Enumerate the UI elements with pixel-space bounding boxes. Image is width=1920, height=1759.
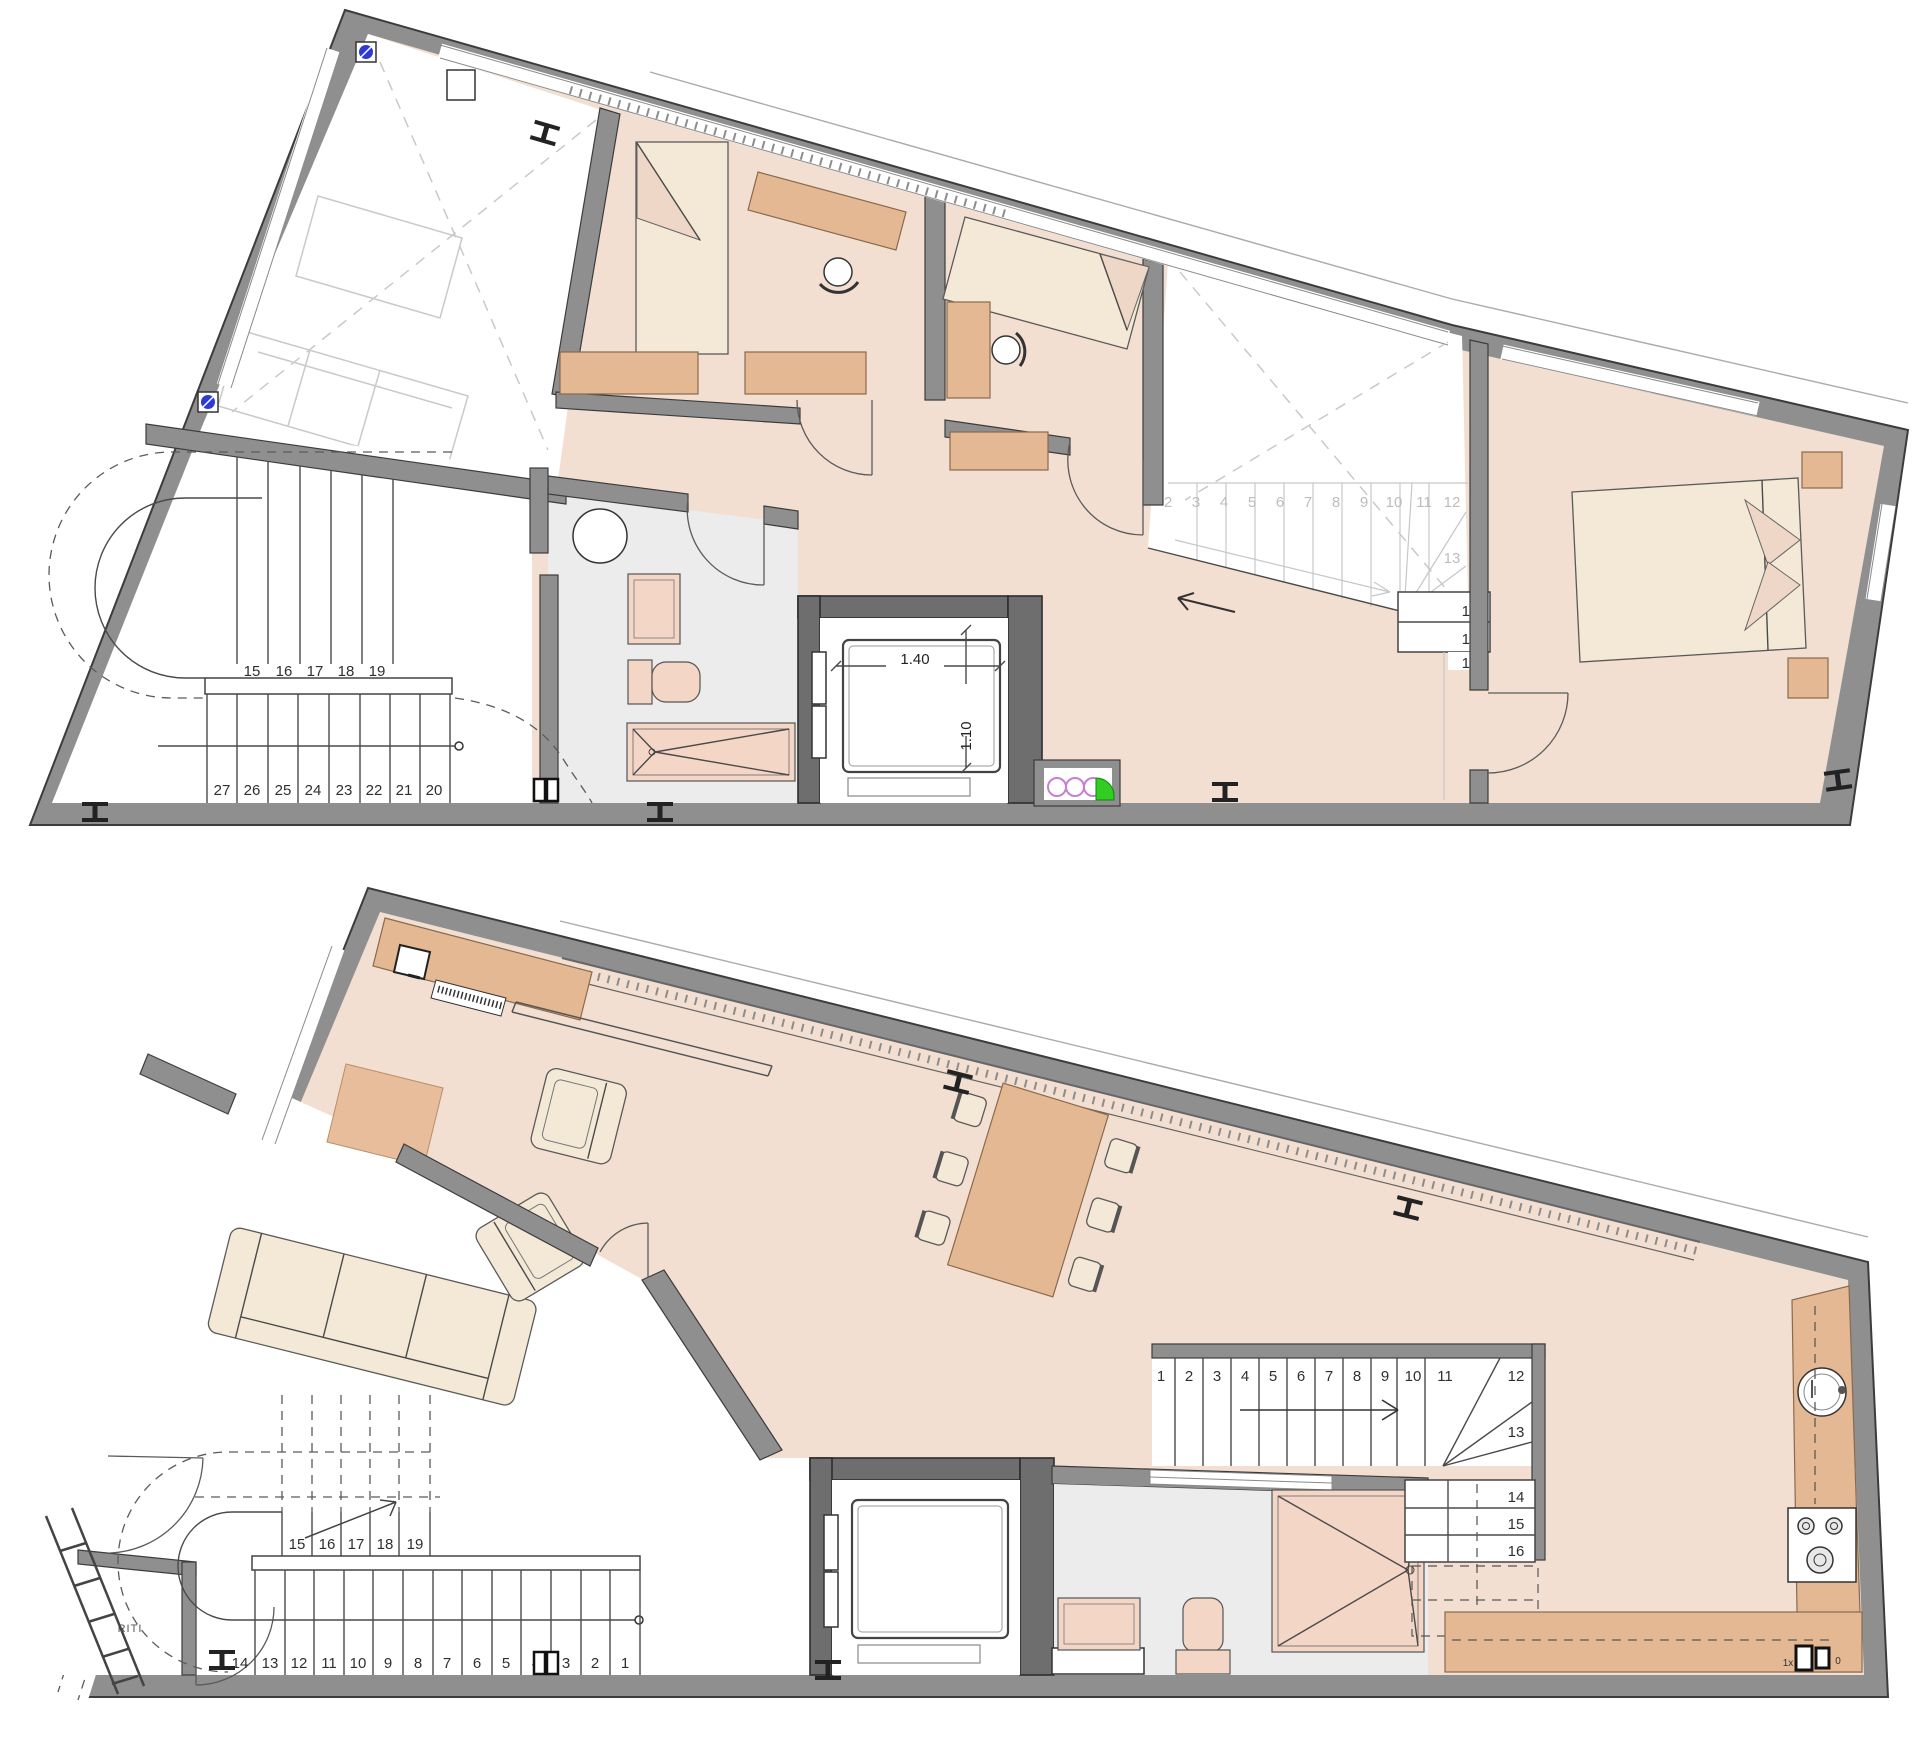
round-basin [573, 509, 627, 563]
bathroom-upper [548, 492, 798, 803]
shaft-wall-top [798, 596, 1008, 618]
step-num: 2 [1185, 1368, 1193, 1385]
wall-bed3-left [1470, 340, 1488, 690]
step-num: 15 [244, 663, 261, 680]
step-num: 2 [1164, 494, 1172, 511]
step-num: 10 [350, 1655, 367, 1672]
step-num: 5 [502, 1655, 510, 1672]
step-num-12: 12 [1508, 1368, 1525, 1385]
step-num: 10 [1405, 1368, 1422, 1385]
wall-niche [447, 70, 475, 100]
step-num: 15 [289, 1536, 306, 1553]
socket-label: 1x [1783, 1658, 1794, 1669]
bathroom-lower [1052, 1466, 1428, 1675]
step-num: 11 [1437, 1368, 1453, 1385]
washbasin [1058, 1598, 1140, 1650]
toilet-bowl [652, 662, 700, 702]
step-num-13: 13 [1508, 1424, 1525, 1441]
step-num: 18 [338, 663, 355, 680]
step-num: 11 [321, 1655, 337, 1672]
laundry-niche [1034, 760, 1120, 806]
stair-landing-lower: 14 15 16 [1405, 1480, 1535, 1562]
step-num: 12 [291, 1655, 308, 1672]
step-num: 16 [319, 1536, 336, 1553]
step-num: 6 [473, 1655, 481, 1672]
dim-140: 1.40 [900, 651, 929, 668]
nightstand-1 [1802, 452, 1842, 488]
sliding-door-1 [812, 652, 826, 704]
step-num: 24 [305, 782, 322, 799]
step-num: 23 [336, 782, 353, 799]
sideboard-1 [560, 352, 698, 394]
floor-plan-sheet: 1.40 1.10 [0, 0, 1920, 1759]
wall-bed1-bed2 [925, 183, 945, 400]
dim-110: 1.10 [958, 721, 975, 750]
step-num: 8 [1332, 494, 1340, 511]
step-num: 4 [1241, 1368, 1249, 1385]
upper-floor-plan: 1.40 1.10 [30, 10, 1908, 825]
vent-symbol-lower [534, 1652, 558, 1674]
step-num: 13 [262, 1655, 279, 1672]
wall-bed2-void [1143, 259, 1163, 505]
step-num: 7 [1304, 494, 1312, 511]
step-num: 17 [348, 1536, 365, 1553]
step-num: 19 [369, 663, 386, 680]
step-num: 25 [275, 782, 292, 799]
step-num: 3 [562, 1655, 570, 1672]
step-num: 27 [214, 782, 231, 799]
step-num: 17 [307, 663, 324, 680]
toilet-bowl-lower [1183, 1598, 1223, 1652]
wall-bath-left-a [530, 468, 548, 553]
step-num: 5 [1269, 1368, 1277, 1385]
handrail-mid [205, 678, 452, 694]
step-num: 20 [426, 782, 443, 799]
shower-lower [1272, 1490, 1424, 1652]
socket-label-2: 0 [1835, 1656, 1841, 1667]
elevator-upper: 1.40 1.10 [798, 596, 1042, 803]
stair-top-wall [1152, 1344, 1545, 1358]
riti-wall-right [182, 1562, 196, 1675]
step-num: 26 [244, 782, 261, 799]
elevator-lower [810, 1458, 1054, 1675]
hob [1788, 1508, 1856, 1582]
step-num: 1 [1157, 1368, 1165, 1385]
step-num-15: 15 [1508, 1516, 1525, 1533]
step-num: 1 [621, 1655, 629, 1672]
wall-bath-left-b [540, 575, 558, 803]
kitchen-sink [1798, 1368, 1846, 1416]
wall-bed3-left-2 [1470, 770, 1488, 803]
step-num: 11 [1416, 494, 1432, 511]
step-num: 6 [1276, 494, 1284, 511]
toilet-tank-lower [1176, 1650, 1230, 1674]
wardrobe-1 [745, 352, 866, 394]
door-sill [848, 778, 970, 796]
landing-rail [252, 1556, 640, 1570]
ground-floor-plan: 1 2 3 4 5 6 7 8 9 10 11 12 13 14 15 16 [26, 888, 1888, 1700]
step-num-12: 12 [1444, 494, 1461, 511]
step-num-14: 14 [1508, 1489, 1525, 1506]
handrail-end [455, 742, 463, 750]
step-num: 10 [1386, 494, 1403, 511]
floor-plans-canvas: 1.40 1.10 [0, 0, 1920, 1759]
handrail-end-lower [635, 1616, 643, 1624]
step-num: 9 [1360, 494, 1368, 511]
step-num: 19 [407, 1536, 424, 1553]
step-num: 9 [1381, 1368, 1389, 1385]
step-num: 3 [1213, 1368, 1221, 1385]
wall-jog [140, 1054, 236, 1114]
wardrobe-2 [950, 432, 1048, 470]
nightstand-2 [1788, 658, 1828, 698]
sliding-door-2 [812, 706, 826, 758]
step-num: 2 [591, 1655, 599, 1672]
basin-counter [1052, 1648, 1144, 1674]
step-num: 8 [414, 1655, 422, 1672]
step-num: 21 [396, 782, 413, 799]
step-num-13: 13 [1444, 550, 1461, 567]
step-num: 6 [1297, 1368, 1305, 1385]
toilet-tank [628, 660, 652, 704]
vanity [628, 574, 680, 644]
shower-tray [627, 723, 795, 781]
step-num: 7 [443, 1655, 451, 1672]
tv [394, 945, 430, 979]
step-num: 7 [1325, 1368, 1333, 1385]
step-num: 22 [366, 782, 383, 799]
desk-2 [947, 302, 990, 398]
step-num: 16 [276, 663, 293, 680]
vent-symbol-upper [534, 779, 558, 801]
step-num: 9 [384, 1655, 392, 1672]
step-num-16: 16 [1508, 1543, 1525, 1560]
step-num: 5 [1248, 494, 1256, 511]
step-num: 8 [1353, 1368, 1361, 1385]
step-num: 4 [1220, 494, 1228, 511]
step-num: 3 [1192, 494, 1200, 511]
step-num: 18 [377, 1536, 394, 1553]
